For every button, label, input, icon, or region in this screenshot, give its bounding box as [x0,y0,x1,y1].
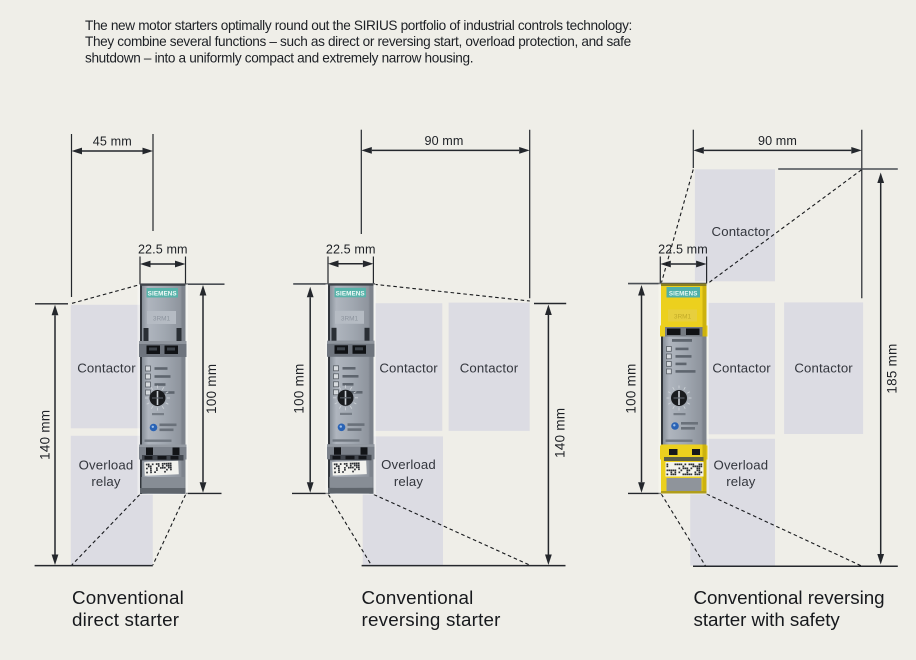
svg-text:Contactor: Contactor [794,360,853,375]
svg-text:Contactor: Contactor [460,360,519,375]
svg-text:relay: relay [91,474,121,489]
svg-text:45 mm: 45 mm [93,134,132,148]
svg-text:Conventional: Conventional [362,587,474,608]
svg-text:100 mm: 100 mm [292,363,307,413]
svg-text:Conventional reversing: Conventional reversing [694,587,885,608]
svg-text:22.5 mm: 22.5 mm [658,243,708,257]
svg-text:140 mm: 140 mm [38,410,53,460]
svg-text:Overload: Overload [79,457,134,472]
svg-text:relay: relay [726,474,756,489]
svg-text:The new motor starters optimal: The new motor starters optimally round o… [85,18,632,33]
svg-text:relay: relay [394,474,424,489]
svg-text:direct starter: direct starter [72,609,179,630]
svg-text:Overload: Overload [714,458,769,473]
svg-text:Contactor: Contactor [712,360,771,375]
svg-text:100 mm: 100 mm [624,363,639,413]
svg-text:Contactor: Contactor [379,360,438,375]
svg-text:22.5 mm: 22.5 mm [138,243,188,257]
svg-text:22.5 mm: 22.5 mm [326,243,376,257]
svg-text:Overload: Overload [381,457,436,472]
svg-text:90 mm: 90 mm [758,134,797,148]
svg-text:140 mm: 140 mm [553,408,568,458]
svg-text:They combine several functions: They combine several functions – such as… [85,34,631,49]
svg-text:Contactor: Contactor [77,360,136,375]
svg-text:100 mm: 100 mm [204,364,219,414]
svg-text:Contactor: Contactor [712,224,771,239]
svg-text:Conventional: Conventional [72,587,184,608]
svg-text:starter with safety: starter with safety [694,609,841,630]
svg-text:90 mm: 90 mm [425,134,464,148]
svg-text:185 mm: 185 mm [884,343,899,393]
svg-text:shutdown – into a uniformly co: shutdown – into a uniformly compact and … [85,50,473,65]
svg-text:reversing starter: reversing starter [362,609,501,630]
